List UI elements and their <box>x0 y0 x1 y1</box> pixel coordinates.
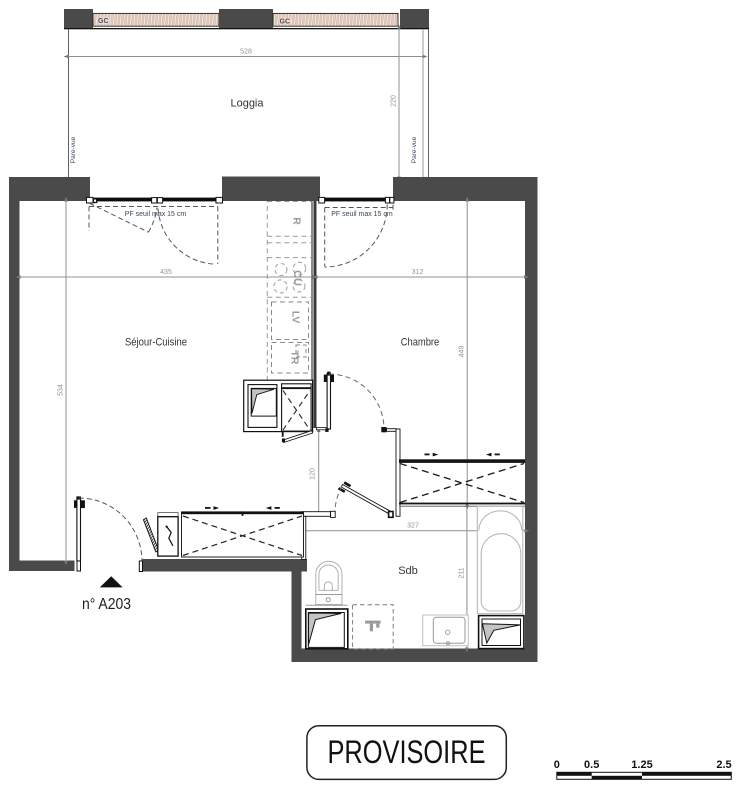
svg-text:1.25: 1.25 <box>631 759 652 771</box>
svg-text:449: 449 <box>459 346 466 358</box>
svg-text:PROVISOIRE: PROVISOIRE <box>328 734 486 770</box>
svg-text:R: R <box>291 217 303 225</box>
svg-text:Séjour-Cuisine: Séjour-Cuisine <box>125 337 187 349</box>
svg-text:PF seuil max 15 cm: PF seuil max 15 cm <box>331 211 393 218</box>
svg-text:Pare-vue: Pare-vue <box>70 136 77 163</box>
svg-text:0: 0 <box>554 759 560 771</box>
svg-text:528: 528 <box>240 49 252 56</box>
svg-text:312: 312 <box>412 269 424 276</box>
svg-text:PF seuil max 15 cm: PF seuil max 15 cm <box>125 211 187 218</box>
svg-text:Sdb: Sdb <box>398 565 418 577</box>
svg-text:534: 534 <box>58 384 65 396</box>
svg-text:327: 327 <box>407 523 419 530</box>
svg-text:211: 211 <box>458 567 465 578</box>
svg-text:Loggia: Loggia <box>231 98 265 110</box>
svg-text:220: 220 <box>391 95 398 107</box>
svg-text:Pare-vue: Pare-vue <box>411 136 418 163</box>
svg-text:120: 120 <box>310 468 317 480</box>
svg-text:LV: LV <box>290 311 302 324</box>
svg-text:GC: GC <box>280 19 291 26</box>
svg-text:2.5: 2.5 <box>716 759 731 771</box>
svg-text:CU: CU <box>291 270 303 286</box>
svg-text:0.5: 0.5 <box>584 759 599 771</box>
svg-text:GC: GC <box>98 18 109 25</box>
svg-text:n° A203: n° A203 <box>82 596 131 613</box>
svg-text:TR: TR <box>289 351 301 365</box>
svg-text:435: 435 <box>160 269 172 276</box>
svg-text:Chambre: Chambre <box>401 337 440 349</box>
